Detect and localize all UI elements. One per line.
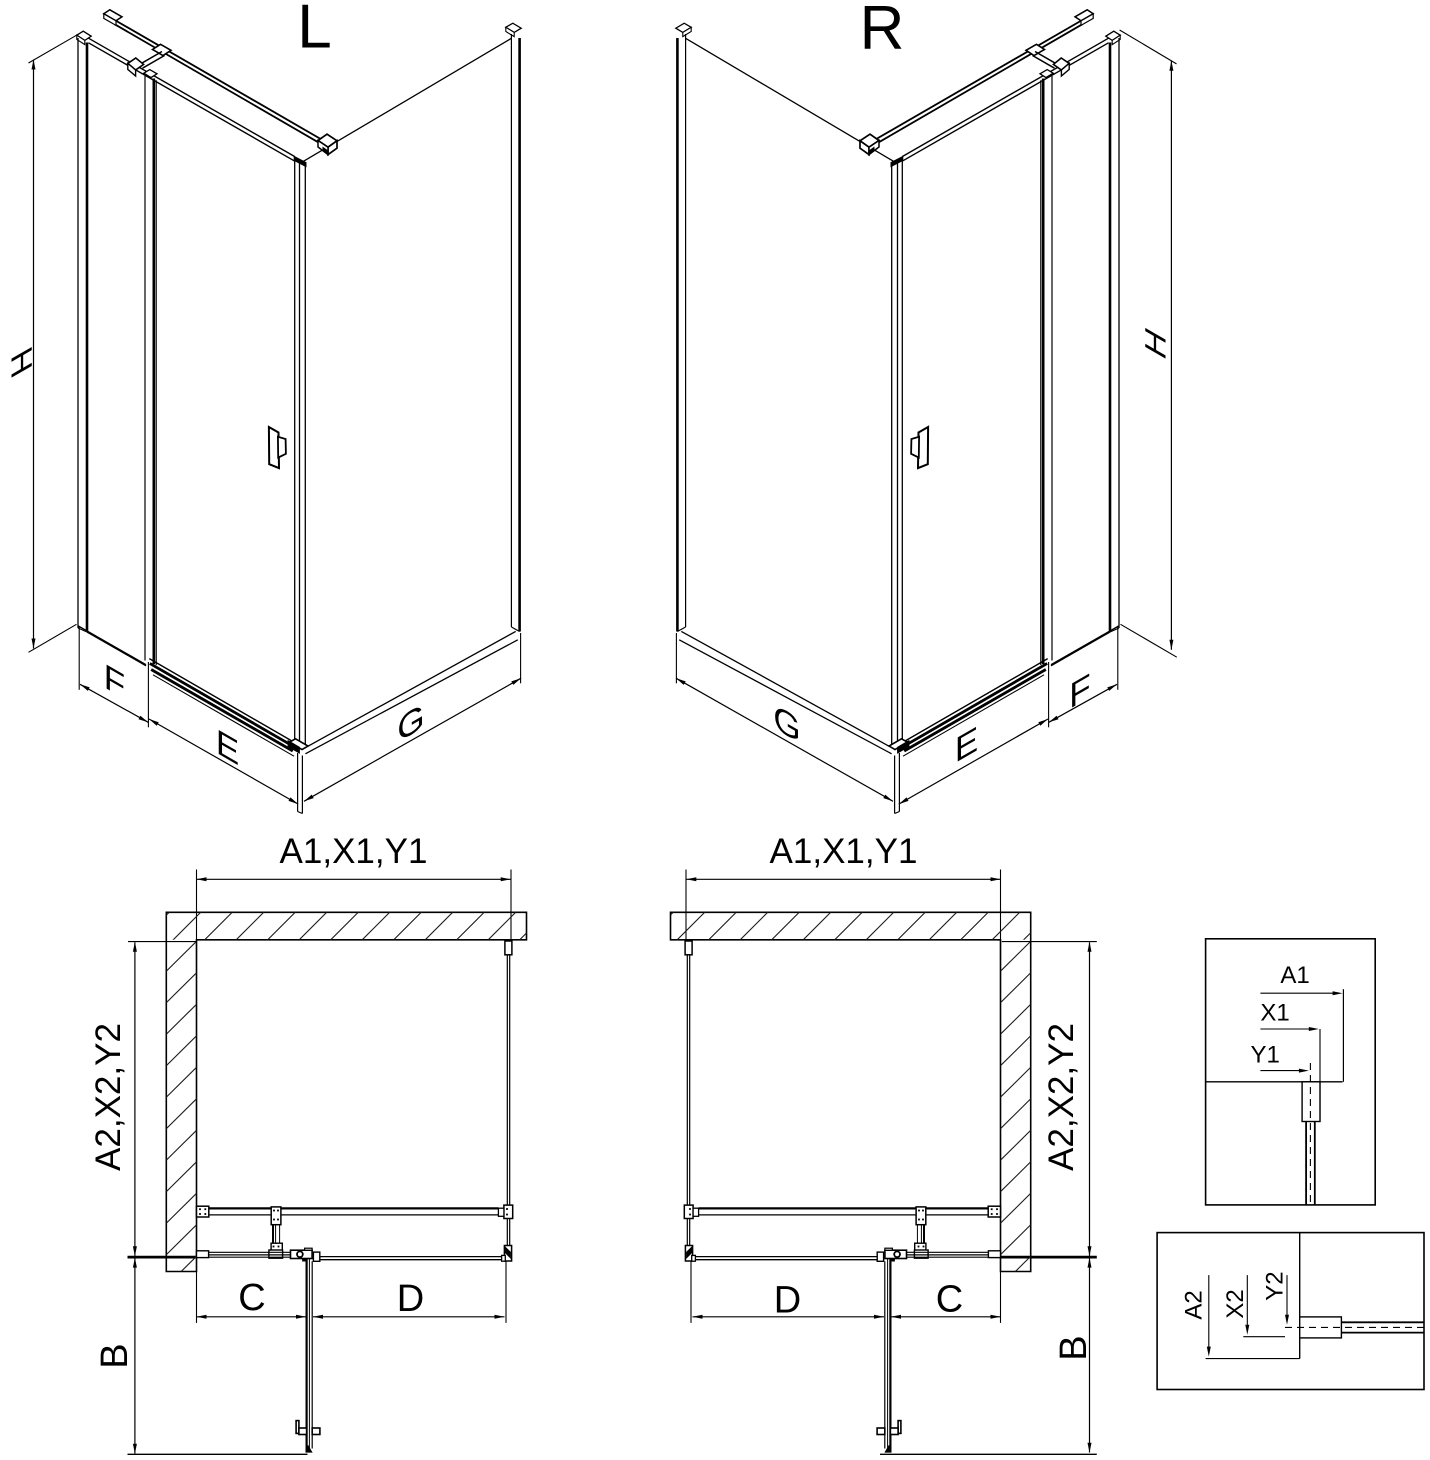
svg-text:C: C [936,1279,963,1321]
svg-text:Y2: Y2 [1262,1271,1289,1300]
svg-text:R: R [860,0,905,63]
svg-text:D: D [397,1278,424,1320]
svg-text:X2: X2 [1222,1289,1249,1318]
svg-text:A2,X2,Y2: A2,X2,Y2 [1042,1023,1081,1171]
svg-text:A1,X1,Y1: A1,X1,Y1 [280,832,428,871]
svg-text:B: B [1053,1335,1095,1360]
svg-text:A1,X1,Y1: A1,X1,Y1 [770,832,918,871]
svg-text:L: L [297,0,331,61]
svg-text:C: C [238,1277,265,1319]
svg-text:B: B [94,1343,136,1368]
svg-text:Y1: Y1 [1251,1041,1280,1068]
svg-text:X1: X1 [1260,1000,1289,1027]
svg-text:A2: A2 [1180,1290,1207,1319]
svg-text:A2,X2,Y2: A2,X2,Y2 [89,1023,128,1171]
svg-text:D: D [774,1280,801,1322]
svg-text:A1: A1 [1280,962,1309,989]
